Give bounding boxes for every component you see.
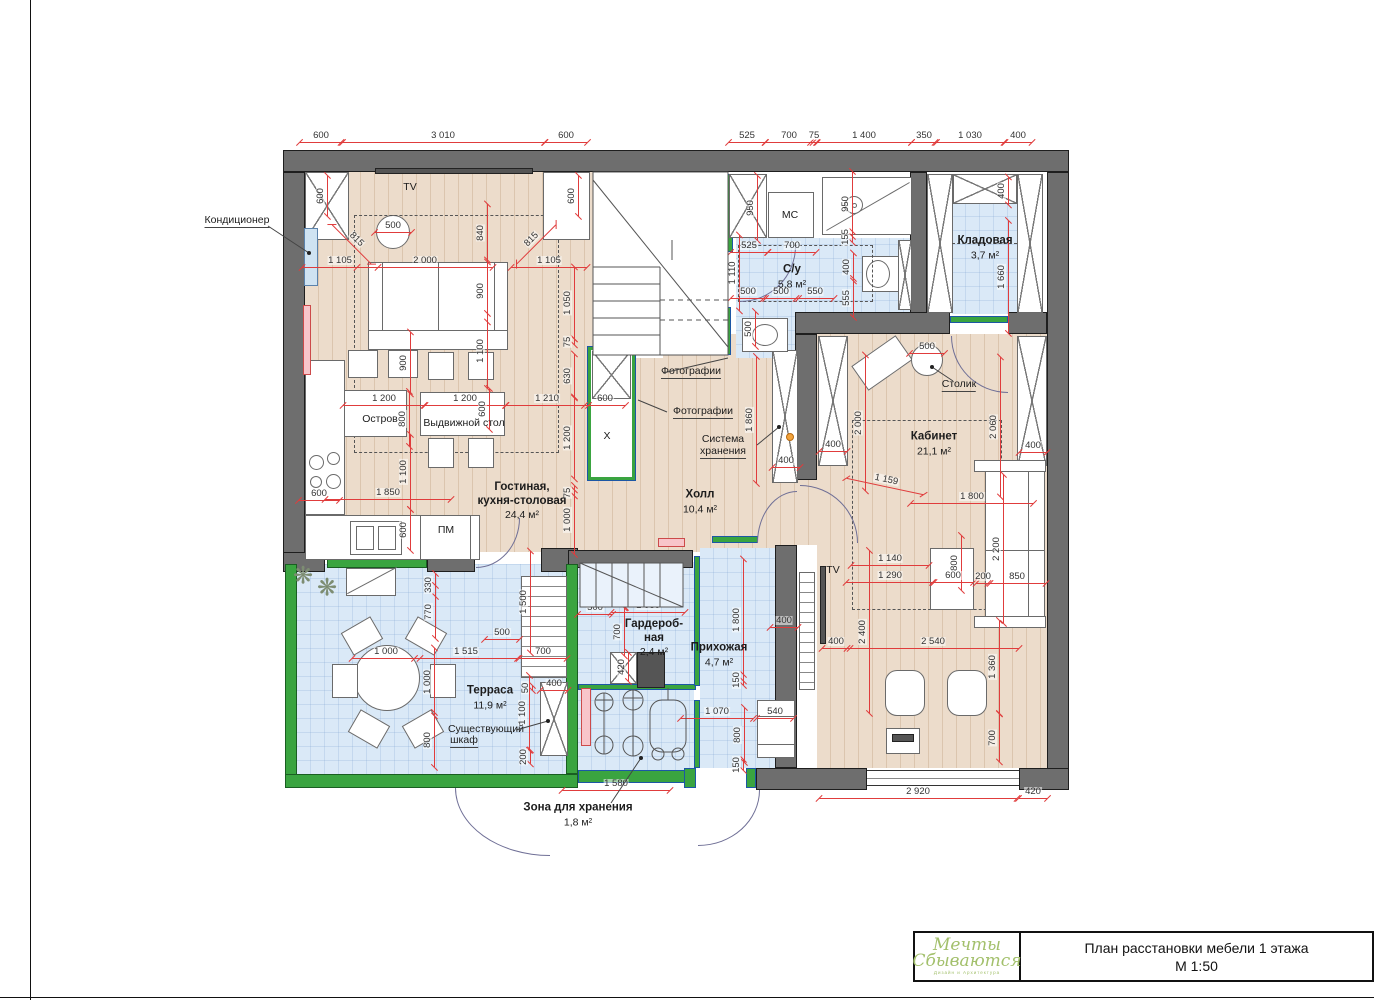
dimension-line	[529, 676, 530, 750]
wall	[795, 334, 817, 480]
dimension-value: 2 920	[905, 787, 931, 797]
dimension-line	[1008, 178, 1009, 205]
dimension-value: 700	[780, 131, 798, 141]
dimension-value: 150	[732, 756, 742, 774]
dimension-line	[820, 798, 1017, 799]
dimension-line	[771, 627, 798, 628]
furniture-xbox	[927, 174, 953, 313]
dimension-line	[506, 405, 588, 406]
dimension-line	[520, 658, 567, 659]
wall	[910, 172, 927, 313]
dimension-line	[1000, 358, 1001, 497]
dimension-line	[865, 356, 866, 491]
dimension-line	[342, 142, 545, 143]
dimension-line	[574, 268, 575, 339]
dimension-value: 2 540	[920, 637, 946, 647]
dimension-value: 1 360	[988, 654, 998, 680]
annotation: МС	[782, 209, 798, 221]
dimension-value: 1 290	[877, 571, 903, 581]
dimension-value: 400	[545, 679, 563, 689]
room-name: Зона для хранения	[523, 802, 632, 816]
dimension-value: 1 050	[563, 290, 573, 316]
partition-wall	[677, 255, 725, 262]
room-label: Гардероб-ная2,4 м²	[625, 618, 683, 658]
room-name: С/у	[778, 264, 806, 278]
dimension-line	[766, 142, 813, 143]
dimension-value: 600	[944, 571, 962, 581]
dimension-value: 700	[613, 623, 623, 641]
partition-wall	[746, 768, 756, 788]
dimension-value: 1 660	[997, 264, 1007, 290]
dimension-line	[1020, 452, 1047, 453]
logo-caption: Дизайн и Архитектура	[934, 970, 1000, 975]
dimension-value: 600	[399, 521, 409, 539]
dimension-value: 2 000	[412, 256, 438, 266]
door-swing-arc	[698, 790, 760, 846]
furniture-fur	[356, 526, 374, 550]
dimension-line	[739, 236, 740, 311]
room-label: Кладовая3,7 м²	[957, 235, 1012, 262]
room-label: Гостиная,кухня-столовая24,4 м²	[478, 481, 567, 521]
dimension-value: 770	[424, 603, 434, 621]
annotation: Фотографии	[661, 365, 721, 379]
dimension-value: 1 110	[728, 260, 738, 285]
room-name: Гардероб-	[625, 618, 683, 632]
dimension-line	[1003, 475, 1004, 623]
furniture-fur	[348, 350, 378, 378]
dimension-value: 850	[1008, 572, 1026, 582]
annotation: Фотографии	[673, 405, 733, 419]
dimension-line	[487, 314, 488, 388]
dimension-line	[729, 142, 765, 143]
furniture-win	[867, 770, 1019, 786]
partition-wall	[950, 316, 1008, 323]
dimension-value: 2 000	[854, 410, 864, 436]
dimension-value: 1 860	[745, 407, 755, 433]
annotation: TV	[403, 181, 416, 193]
dimension-line	[681, 718, 753, 719]
furniture-dark	[892, 734, 914, 742]
dimension-value: 400	[1024, 441, 1042, 451]
dimension-value: 1 200	[563, 425, 573, 451]
furniture-circle	[327, 452, 340, 465]
furniture-line	[420, 515, 421, 560]
room-label: Прихожая4,7 м²	[691, 642, 748, 669]
dimension-line	[625, 573, 626, 607]
dimension-value: 2 400	[858, 619, 868, 645]
dimension-value: 400	[997, 182, 1007, 200]
dimension-line	[989, 583, 1046, 584]
dimension-value: 600	[557, 131, 575, 141]
partition-wall	[285, 564, 297, 788]
furniture-rfur	[885, 670, 925, 716]
annotation: ❋	[317, 574, 337, 603]
dimension-value: 500	[586, 603, 604, 613]
dimension-value: 555	[842, 289, 852, 307]
room-area: 5,8 м²	[778, 278, 806, 290]
furniture-line	[438, 262, 439, 330]
dimension-value: 950	[746, 199, 756, 217]
room-area: 4,7 м²	[691, 656, 748, 668]
logo-text-line2: Сбываются	[912, 954, 1021, 969]
furniture-odot	[786, 433, 794, 441]
dimension-line	[936, 142, 1005, 143]
company-logo: Мечты Сбываются Дизайн и Архитектура	[915, 933, 1021, 980]
room-area: 2,4 м²	[625, 646, 683, 658]
dimension-value: 155	[841, 228, 851, 246]
dimension-value: 1 000	[373, 647, 399, 657]
annotation: Выдвижной стол	[423, 417, 504, 429]
dimension-value: 1 800	[732, 607, 742, 633]
furniture-fur	[332, 664, 358, 698]
dimension-line	[434, 649, 435, 716]
dimension-line	[541, 690, 568, 691]
dimension-value: 500	[918, 342, 936, 352]
dimension-value: 1 200	[371, 394, 397, 404]
dimension-value: 200	[519, 748, 529, 766]
dimension-value: 1 000	[423, 669, 433, 695]
dimension-value: 500	[739, 287, 757, 297]
dimension-value: 800	[733, 726, 743, 744]
dimension-line	[731, 252, 767, 253]
dimension-line	[852, 565, 929, 566]
dimension-value: 1 100	[399, 459, 409, 485]
partition-wall	[285, 774, 578, 788]
room-name: ная	[625, 632, 683, 646]
dimension-value: 950	[841, 195, 851, 213]
dimension-value: 700	[988, 729, 998, 747]
dimension-value: 500	[493, 628, 511, 638]
furniture-circle	[326, 474, 341, 489]
room-area: 3,7 м²	[957, 249, 1012, 261]
dimension-value: 400	[827, 637, 845, 647]
dimension-line	[612, 612, 685, 613]
dimension-value: 400	[842, 258, 852, 276]
drawing-title-cell: План расстановки мебели 1 этажа М 1:50	[1021, 933, 1372, 980]
furniture-fur	[428, 438, 454, 468]
dimension-line	[410, 333, 411, 394]
dimension-line	[731, 298, 765, 299]
dimension-line	[869, 551, 870, 713]
floor	[578, 686, 694, 770]
dimension-line	[578, 176, 579, 216]
door-swing-arc	[476, 518, 520, 568]
annotation: ПМ	[438, 524, 454, 536]
dimension-value: 700	[783, 241, 801, 251]
furniture-slath	[799, 572, 815, 690]
dimension-line	[585, 405, 625, 406]
dimension-line	[757, 718, 793, 719]
drawing-scale: М 1:50	[1175, 958, 1218, 974]
dimension-line	[852, 172, 853, 236]
dimension-value: 600	[316, 187, 326, 205]
dimension-value: 800	[398, 410, 408, 428]
floor	[593, 272, 663, 358]
dimension-line	[574, 486, 575, 554]
dimension-value: 150	[732, 671, 742, 689]
furniture-fur	[468, 438, 494, 468]
dimension-value: 1 100	[476, 338, 486, 364]
annotation: Кондиционер	[205, 214, 270, 228]
room-name: Кабинет	[911, 431, 958, 445]
room-label: Терраса11,9 м²	[467, 685, 513, 712]
dimension-line	[769, 252, 816, 253]
dimension-value: 1 080	[635, 601, 661, 611]
dimension-value: 525	[738, 131, 756, 141]
furniture-fur	[974, 616, 1046, 628]
dimension-value: 1 515	[453, 647, 479, 657]
dimension-line	[434, 713, 435, 767]
drawing-title: План расстановки мебели 1 этажа	[1084, 940, 1308, 956]
dimension-line	[910, 353, 944, 354]
dimension-line	[299, 500, 339, 501]
furniture-line	[470, 515, 471, 560]
annotation: хранения	[700, 445, 746, 459]
dimension-value: 1 105	[536, 256, 562, 266]
annotation: Столик	[942, 378, 976, 392]
furniture-ac	[304, 228, 318, 286]
dimension-line	[410, 510, 411, 550]
dimension-value: 1 140	[877, 554, 903, 564]
partition-wall	[578, 770, 694, 783]
dimension-line	[410, 435, 411, 509]
wall	[795, 312, 950, 334]
dimension-line	[743, 675, 744, 685]
room-name: Прихожая	[691, 642, 748, 656]
dimension-value: 550	[806, 287, 824, 297]
dimension-line	[1005, 142, 1032, 143]
dimension-value: 1 500	[519, 589, 529, 615]
dimension-value: 400	[775, 616, 793, 626]
dimension-line	[530, 552, 531, 653]
annotation: Система	[702, 433, 744, 445]
dimension-value: 630	[563, 367, 573, 385]
dimension-value: 600	[478, 400, 488, 418]
dimension-value: 350	[915, 131, 933, 141]
dimension-line	[933, 582, 973, 583]
furniture-circle	[309, 455, 324, 470]
dimension-line	[344, 405, 425, 406]
dimension-line	[757, 176, 758, 240]
room-name: Кладовая	[957, 235, 1012, 249]
furniture-dark	[820, 566, 826, 644]
dimension-line	[574, 398, 575, 479]
dimension-line	[756, 357, 757, 483]
dimension-value: 600	[596, 394, 614, 404]
wall	[568, 550, 693, 568]
dimension-line	[415, 658, 517, 659]
furniture-fur	[378, 526, 396, 550]
dimension-value: 1 580	[603, 779, 629, 789]
furniture-line	[757, 744, 795, 745]
dimension-value: 900	[476, 282, 486, 300]
dimension-line	[485, 639, 519, 640]
room-name: Терраса	[467, 685, 513, 699]
room-area: 21,1 м²	[911, 445, 958, 457]
dimension-line	[773, 467, 800, 468]
dimension-line	[300, 142, 342, 143]
furniture-circle	[310, 476, 322, 488]
dimension-line	[358, 267, 493, 268]
dimension-line	[744, 708, 745, 762]
dimension-value: 1 210	[534, 394, 560, 404]
room-name: Холл	[683, 489, 717, 503]
furniture-rfur	[947, 670, 987, 716]
dimension-value: 525	[740, 241, 758, 251]
dimension-value: 400	[777, 456, 795, 466]
dimension-value: 900	[399, 354, 409, 372]
furniture-line	[494, 262, 495, 330]
dimension-line	[797, 298, 834, 299]
room-label: Зона для хранения1,8 м²	[523, 802, 632, 829]
dimension-value: 600	[312, 131, 330, 141]
wall	[756, 768, 867, 790]
dimension-line	[435, 586, 436, 638]
dimension-line	[425, 405, 506, 406]
room-label: Холл10,4 м²	[683, 489, 717, 516]
dimension-line	[326, 499, 451, 500]
dimension-value: 2 060	[989, 414, 999, 440]
dimension-line	[853, 279, 854, 317]
dimension-line	[574, 355, 575, 398]
dimension-value: 2 200	[992, 536, 1002, 562]
room-area: 10,4 м²	[683, 503, 717, 515]
dimension-line	[574, 340, 575, 345]
furniture-fur	[974, 460, 1046, 472]
furniture-line	[382, 262, 383, 330]
furniture-xbox	[898, 240, 912, 310]
dimension-line	[911, 503, 1033, 504]
dimension-value: 800	[423, 731, 433, 749]
floor-plan-sheet: 6003 010600525700751 4003501 03040060081…	[0, 0, 1374, 1000]
dimension-value: 330	[424, 576, 434, 594]
dimension-line	[530, 751, 531, 764]
furniture-pink	[658, 538, 685, 547]
annotation: шкаф	[450, 734, 478, 748]
dimension-line	[847, 582, 934, 583]
dimension-line	[817, 142, 911, 143]
dimension-value: 540	[766, 707, 784, 717]
title-block: Мечты Сбываются Дизайн и Архитектура Пла…	[913, 931, 1374, 982]
dimension-value: 420	[617, 658, 627, 676]
room-name: Гостиная,	[478, 481, 567, 495]
dimension-value: 75	[563, 336, 573, 349]
dimension-value: 700	[534, 647, 552, 657]
annotation: Х	[603, 430, 610, 442]
partition-wall	[723, 307, 731, 355]
dimension-value: 1 200	[452, 394, 478, 404]
dimension-line	[487, 205, 488, 262]
room-label: С/у5,8 м²	[778, 264, 806, 291]
annotation: ❋	[293, 562, 313, 591]
dimension-value: 1 800	[959, 492, 985, 502]
dimension-line	[999, 715, 1000, 762]
furniture-pink	[581, 688, 591, 746]
room-area: 11,9 м²	[467, 699, 513, 711]
wall	[1008, 312, 1047, 334]
annotation: Остров	[362, 413, 397, 425]
room-label: Кабинет21,1 м²	[911, 431, 958, 458]
dimension-line	[563, 790, 670, 791]
furniture-fur	[428, 352, 454, 380]
dimension-value: 1 030	[957, 131, 983, 141]
dimension-value: 1 400	[851, 131, 877, 141]
furniture-line	[1028, 468, 1029, 628]
dimension-value: 400	[824, 440, 842, 450]
wall	[283, 172, 305, 562]
dimension-value: 500	[384, 221, 402, 231]
dimension-line	[375, 232, 411, 233]
annotation: TV	[826, 564, 839, 576]
dimension-value: 420	[1024, 787, 1042, 797]
dimension-line	[327, 176, 328, 216]
dimension-line	[353, 658, 420, 659]
dimension-value: 600	[567, 187, 577, 205]
dimension-line	[755, 312, 756, 346]
dimension-value: 500	[614, 581, 624, 599]
dimension-value: 1 070	[704, 707, 730, 717]
dimension-value: 1 105	[327, 256, 353, 266]
dimension-value: 3 010	[430, 131, 456, 141]
dimension-line	[1019, 798, 1047, 799]
dimension-line	[848, 648, 1019, 649]
furniture-pink	[303, 305, 311, 375]
dimension-value: 400	[1009, 131, 1027, 141]
partition-wall	[684, 768, 696, 788]
dimension-line	[743, 760, 744, 770]
partition-wall	[694, 700, 700, 768]
dimension-line	[999, 621, 1000, 713]
dimension-value: 1 850	[375, 488, 401, 498]
furniture-dark	[375, 168, 533, 174]
dimension-line	[545, 142, 587, 143]
room-name: кухня-столовая	[478, 495, 567, 509]
partition-wall	[712, 536, 758, 543]
dimension-value: 840	[476, 224, 486, 242]
wall	[1047, 172, 1069, 790]
dimension-line	[764, 298, 798, 299]
room-area: 1,8 м²	[523, 816, 632, 828]
dimension-value: 500	[744, 320, 754, 338]
room-area: 24,4 м²	[478, 509, 567, 521]
furniture-xbox	[1017, 174, 1043, 313]
dimension-line	[820, 451, 847, 452]
dimension-line	[852, 232, 853, 242]
floor-plan: 6003 010600525700751 4003501 03040060081…	[0, 0, 1374, 1000]
dimension-line	[532, 686, 533, 690]
